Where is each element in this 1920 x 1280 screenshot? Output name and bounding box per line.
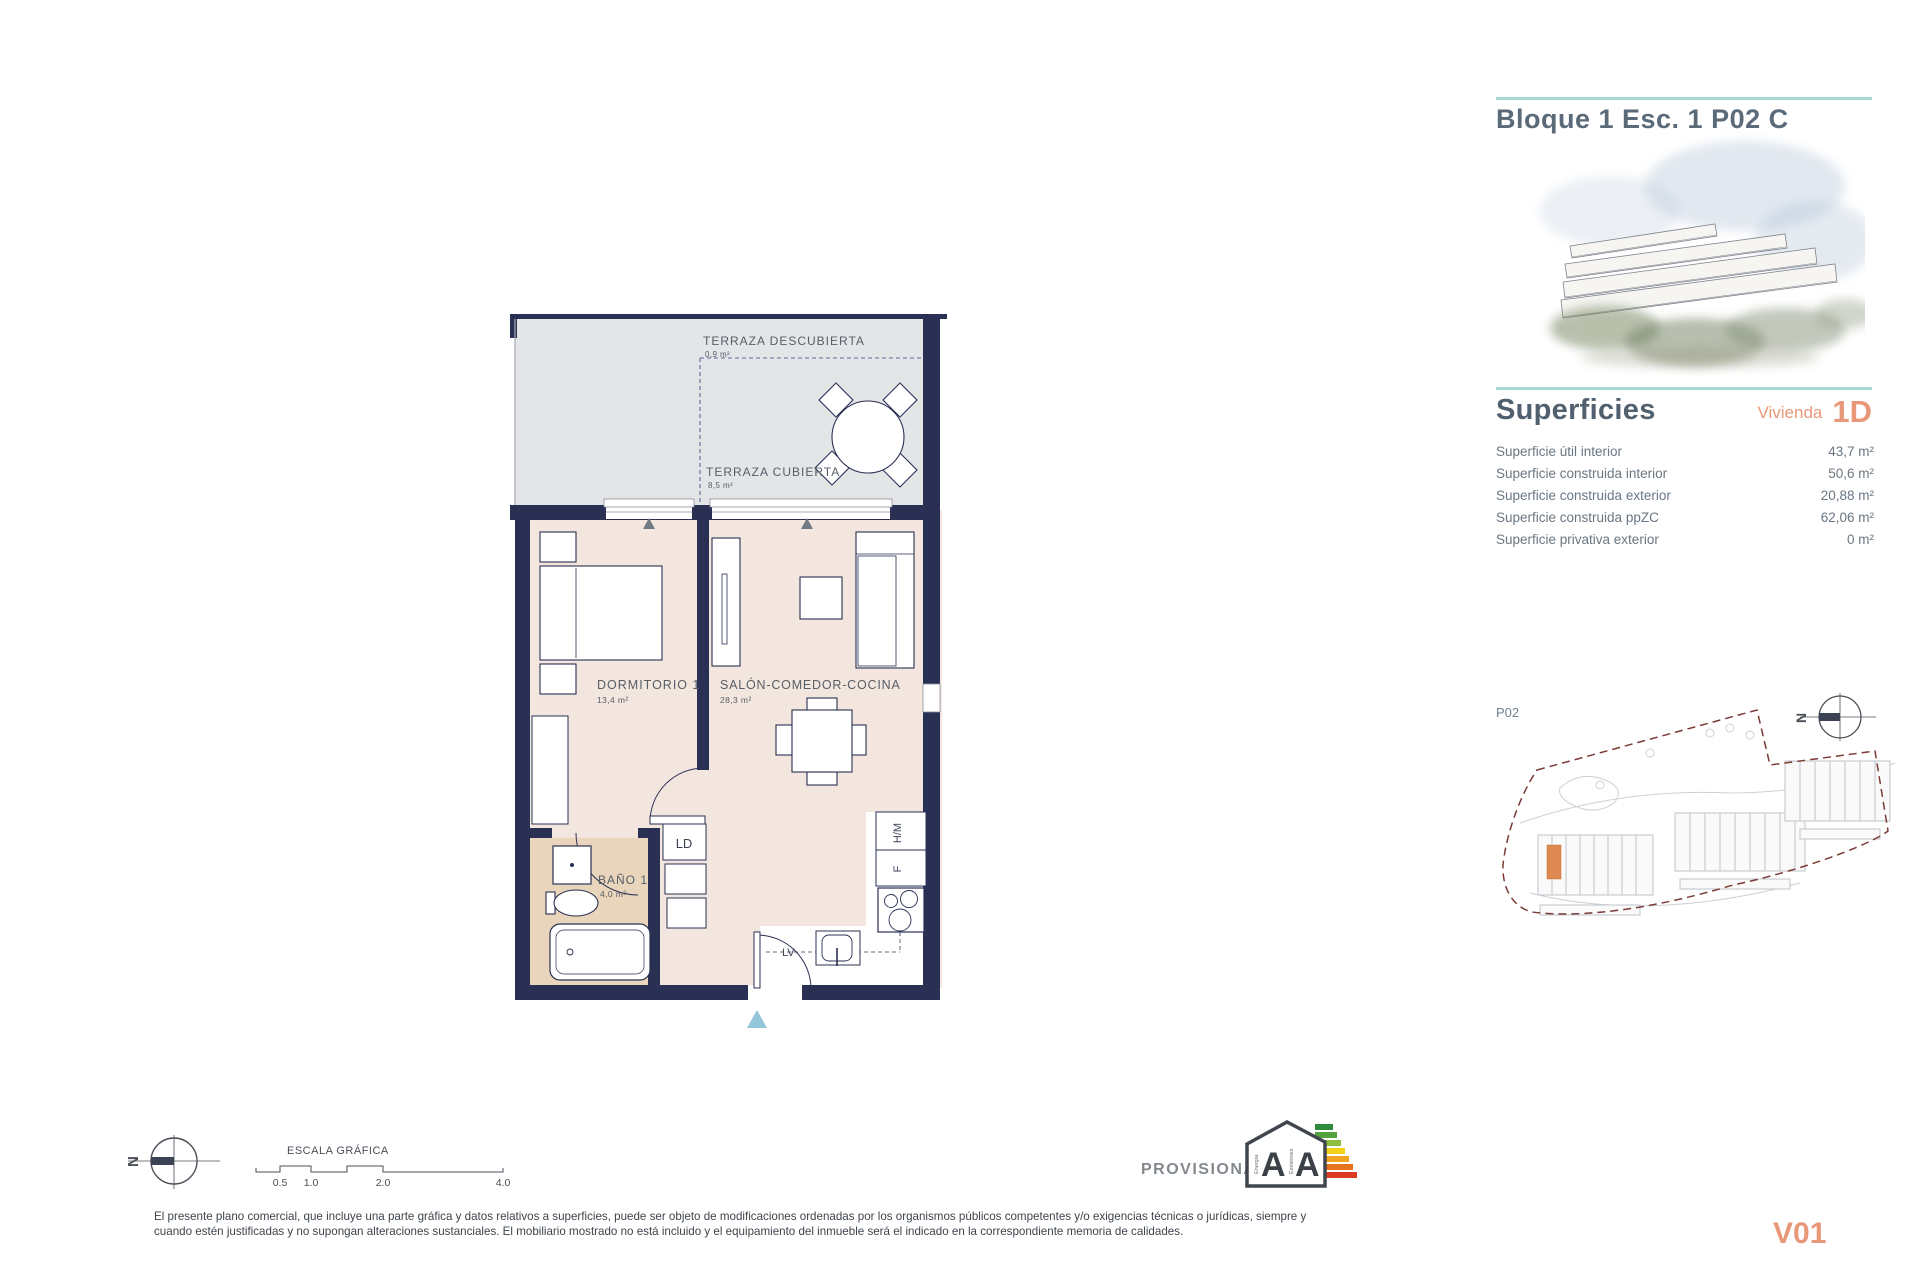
disclaimer: El presente plano comercial, que incluye… <box>154 1209 1464 1239</box>
disclaimer-line-2: cuando estén justificadas y no supongan … <box>154 1224 1464 1239</box>
bano-label: BAÑO 1 <box>598 873 648 887</box>
tv-cabinet-symbol <box>712 538 740 666</box>
toilet-symbol <box>546 890 598 916</box>
salon-label: SALÓN-COMEDOR-COCINA <box>720 677 901 692</box>
table-row: Superficie construida ppZC 62,06 m² <box>1496 507 1874 529</box>
sofa-symbol <box>856 532 914 668</box>
table-row: Superficie útil interior 43,7 m² <box>1496 441 1874 463</box>
terraza-cubierta-label: TERRAZA CUBIERTA <box>706 465 840 479</box>
site-buildings <box>1538 761 1890 915</box>
lv-code: LV <box>782 947 795 959</box>
scale-label: ESCALA GRÁFICA <box>287 1145 389 1157</box>
row-label: Superficie construida exterior <box>1496 485 1671 507</box>
north-compass-icon: N <box>126 1133 222 1195</box>
table-row: Superficie construida exterior 20,88 m² <box>1496 485 1874 507</box>
building-rendering-image <box>1515 116 1865 382</box>
energy-letter: A <box>1261 1146 1286 1184</box>
salon-area: 28,3 m² <box>720 695 752 705</box>
row-value: 62,06 m² <box>1821 507 1874 529</box>
side-table-symbol <box>800 577 842 619</box>
scale-tick: 1.0 <box>304 1177 319 1189</box>
sink-symbol <box>816 931 860 966</box>
superficies-accent-line <box>1496 387 1872 390</box>
scale-tick: 0.5 <box>273 1177 288 1189</box>
row-label: Superficie construida ppZC <box>1496 507 1659 529</box>
row-label: Superficie construida interior <box>1496 463 1667 485</box>
highlighted-unit <box>1547 845 1561 879</box>
north-letter: N <box>1793 713 1809 723</box>
site-north-compass-icon: N <box>1793 693 1876 741</box>
f-code: F <box>892 865 904 872</box>
wardrobe-symbol <box>532 716 568 824</box>
emissions-letter: A <box>1295 1146 1320 1184</box>
superficies-table: Superficie útil interior 43,7 m² Superfi… <box>1496 441 1874 551</box>
row-value: 0 m² <box>1847 529 1874 551</box>
energy-rating-icon: A A Energía Emisiones <box>1237 1114 1367 1194</box>
entry-marker-triangle <box>747 1010 767 1028</box>
bathtub-symbol <box>550 924 650 980</box>
row-label: Superficie útil interior <box>1496 441 1622 463</box>
scale-bar: 0.5 1.0 2.0 4.0 <box>248 1157 523 1191</box>
disclaimer-line-1: El presente plano comercial, que incluye… <box>154 1209 1464 1224</box>
terraza-descubierta-area: 0,9 m² <box>705 350 730 359</box>
floor-plan: TERRAZA DESCUBIERTA 0,9 m² TERRAZA CUBIE… <box>510 312 955 1032</box>
dormitorio-label: DORMITORIO 1 <box>597 678 700 692</box>
row-value: 43,7 m² <box>1828 441 1874 463</box>
row-value: 50,6 m² <box>1828 463 1874 485</box>
north-letter: N <box>126 1156 142 1167</box>
table-row: Superficie privativa exterior 0 m² <box>1496 529 1874 551</box>
bano-area: 4,0 m² <box>600 889 627 899</box>
scale-tick: 4.0 <box>496 1177 511 1189</box>
vivienda-label: Vivienda <box>1757 403 1822 427</box>
scale-tick: 2.0 <box>376 1177 391 1189</box>
superficies-header: Superficies Vivienda 1D <box>1496 394 1872 427</box>
row-label: Superficie privativa exterior <box>1496 529 1659 551</box>
site-plan: N <box>1500 693 1912 961</box>
shower-symbol <box>553 846 591 884</box>
terraza-cubierta-area: 8,5 m² <box>708 481 733 490</box>
header-accent-line <box>1496 97 1872 100</box>
hm-code: H/M <box>892 823 904 843</box>
superficies-heading: Superficies <box>1496 394 1656 427</box>
energy-caption: Energía <box>1254 1154 1260 1174</box>
version-label: V01 <box>1773 1217 1826 1251</box>
row-value: 20,88 m² <box>1821 485 1874 507</box>
dormitorio-area: 13,4 m² <box>597 695 629 705</box>
terraza-descubierta-label: TERRAZA DESCUBIERTA <box>703 334 865 348</box>
plan-sheet: TERRAZA DESCUBIERTA 0,9 m² TERRAZA CUBIE… <box>0 0 1920 1280</box>
vivienda-code: 1D <box>1832 396 1872 427</box>
table-row: Superficie construida interior 50,6 m² <box>1496 463 1874 485</box>
ld-code: LD <box>676 836 693 851</box>
emissions-caption: Emisiones <box>1289 1148 1295 1174</box>
